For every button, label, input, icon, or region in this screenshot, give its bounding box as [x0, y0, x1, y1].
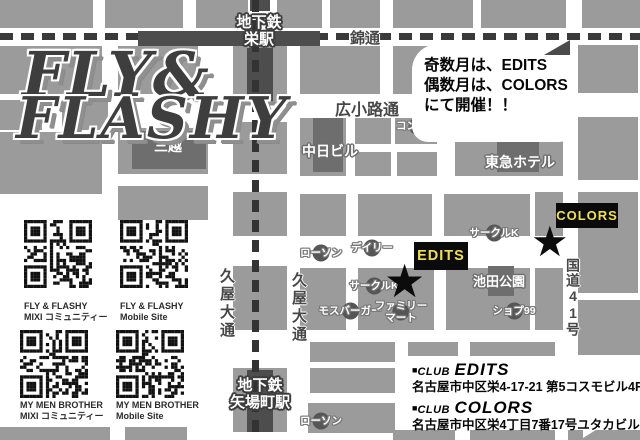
- city-block: [358, 194, 432, 236]
- sakae-station-label: 地下鉄 栄駅: [236, 14, 281, 48]
- notice-line1: 奇数月は、EDITS: [424, 56, 568, 76]
- city-block: [408, 342, 458, 356]
- city-block: [310, 368, 395, 393]
- schedule-notice: 奇数月は、EDITS 偶数月は、COLORS にて開催！！: [424, 56, 568, 116]
- street-label-hisaya-right: 久屋大通: [288, 272, 309, 344]
- qr-label-2: FLY & FLASHYMobile Site: [120, 301, 184, 323]
- street-label-hirokoji: 広小路通: [335, 96, 399, 120]
- city-block: [300, 46, 380, 94]
- city-block: [481, 0, 566, 28]
- city-block: [125, 427, 187, 440]
- store-lawson-bottom: ローソン: [300, 415, 342, 427]
- city-block: [578, 117, 638, 180]
- store-circlek-top: サークルK: [469, 227, 518, 239]
- club-colors-title: ■CLUB COLORS: [412, 398, 640, 418]
- city-block: [397, 152, 437, 176]
- city-block: [355, 152, 391, 176]
- city-block: [470, 342, 555, 356]
- city-block: [105, 0, 183, 28]
- sakae-station-line1: 地下鉄: [236, 14, 281, 31]
- address-list: ■CLUB EDITS 名古屋市中区栄4-17-21 第5コスモビル4F ■CL…: [412, 360, 640, 433]
- building-label-ikeda-park: 池田公園: [473, 271, 525, 290]
- city-block: [535, 268, 563, 330]
- city-block: [0, 0, 93, 28]
- street-label-nishiki: 錦通: [350, 27, 380, 48]
- city-block: [277, 0, 322, 28]
- city-block: [578, 45, 638, 93]
- qr-label-4: MY MEN BROTHERMobile Site: [116, 400, 199, 422]
- yabacho-station-label: 地下鉄 矢場町駅: [230, 377, 290, 411]
- city-block: [393, 0, 473, 28]
- city-block: [233, 192, 287, 236]
- subway-dashed-line: [252, 0, 259, 440]
- qr-label-3: MY MEN BROTHERMIXI コミュニティー: [20, 400, 103, 422]
- qr-code-mymenbrother-mobile: [116, 330, 184, 403]
- club-edits-address: 名古屋市中区栄4-17-21 第5コスモビル4F: [412, 380, 640, 395]
- yabacho-station-line2: 矢場町駅: [230, 394, 290, 411]
- yabacho-station-line1: 地下鉄: [230, 377, 290, 394]
- sakae-station-line2: 栄駅: [236, 31, 281, 48]
- building-label-chunichi: 中日ビル: [302, 141, 358, 161]
- club-map-flyer: 錦通 広小路通 久屋大通 久屋大通 国道41号 地下鉄 栄駅 地下鉄 矢場町駅 …: [0, 0, 640, 440]
- edits-star-icon: ★: [384, 258, 425, 304]
- city-block: [233, 266, 287, 330]
- city-block: [355, 118, 391, 144]
- colors-star-icon: ★: [531, 221, 569, 263]
- bubble-fold: [544, 40, 570, 55]
- qr-code-mymenbrother-mixi: [20, 330, 88, 403]
- city-block: [330, 0, 380, 28]
- city-block: [300, 194, 346, 236]
- qr-code-flyflashy-mixi: [24, 220, 92, 293]
- logo-flashy: FLASHY: [16, 90, 288, 147]
- store-lawson-top: ローソン: [300, 247, 342, 259]
- notice-line3: にて開催！！: [424, 96, 568, 116]
- notice-line2: 偶数月は、COLORS: [424, 76, 568, 96]
- qr-code-flyflashy-mobile: [120, 220, 188, 293]
- store-daily: デイリー: [351, 242, 393, 254]
- club-edits-title: ■CLUB EDITS: [412, 360, 640, 380]
- city-block: [0, 427, 110, 440]
- street-label-route41: 国道41号: [563, 258, 583, 337]
- qr-label-1: FLY & FLASHYMIXI コミュニティー: [24, 301, 107, 323]
- city-block: [310, 342, 395, 362]
- store-shop99: ショプ99: [492, 305, 535, 317]
- city-block: [118, 186, 208, 220]
- city-block: [582, 0, 640, 28]
- store-mos-burger: モスバーガー: [319, 305, 382, 317]
- street-label-hisaya-left: 久屋大通: [216, 268, 237, 340]
- city-block: [578, 300, 640, 355]
- club-colors-address: 名古屋市中区栄4丁目7番17号ユタカビル3F: [412, 418, 640, 433]
- building-label-tokyu-hotel: 東急ホテル: [485, 152, 555, 172]
